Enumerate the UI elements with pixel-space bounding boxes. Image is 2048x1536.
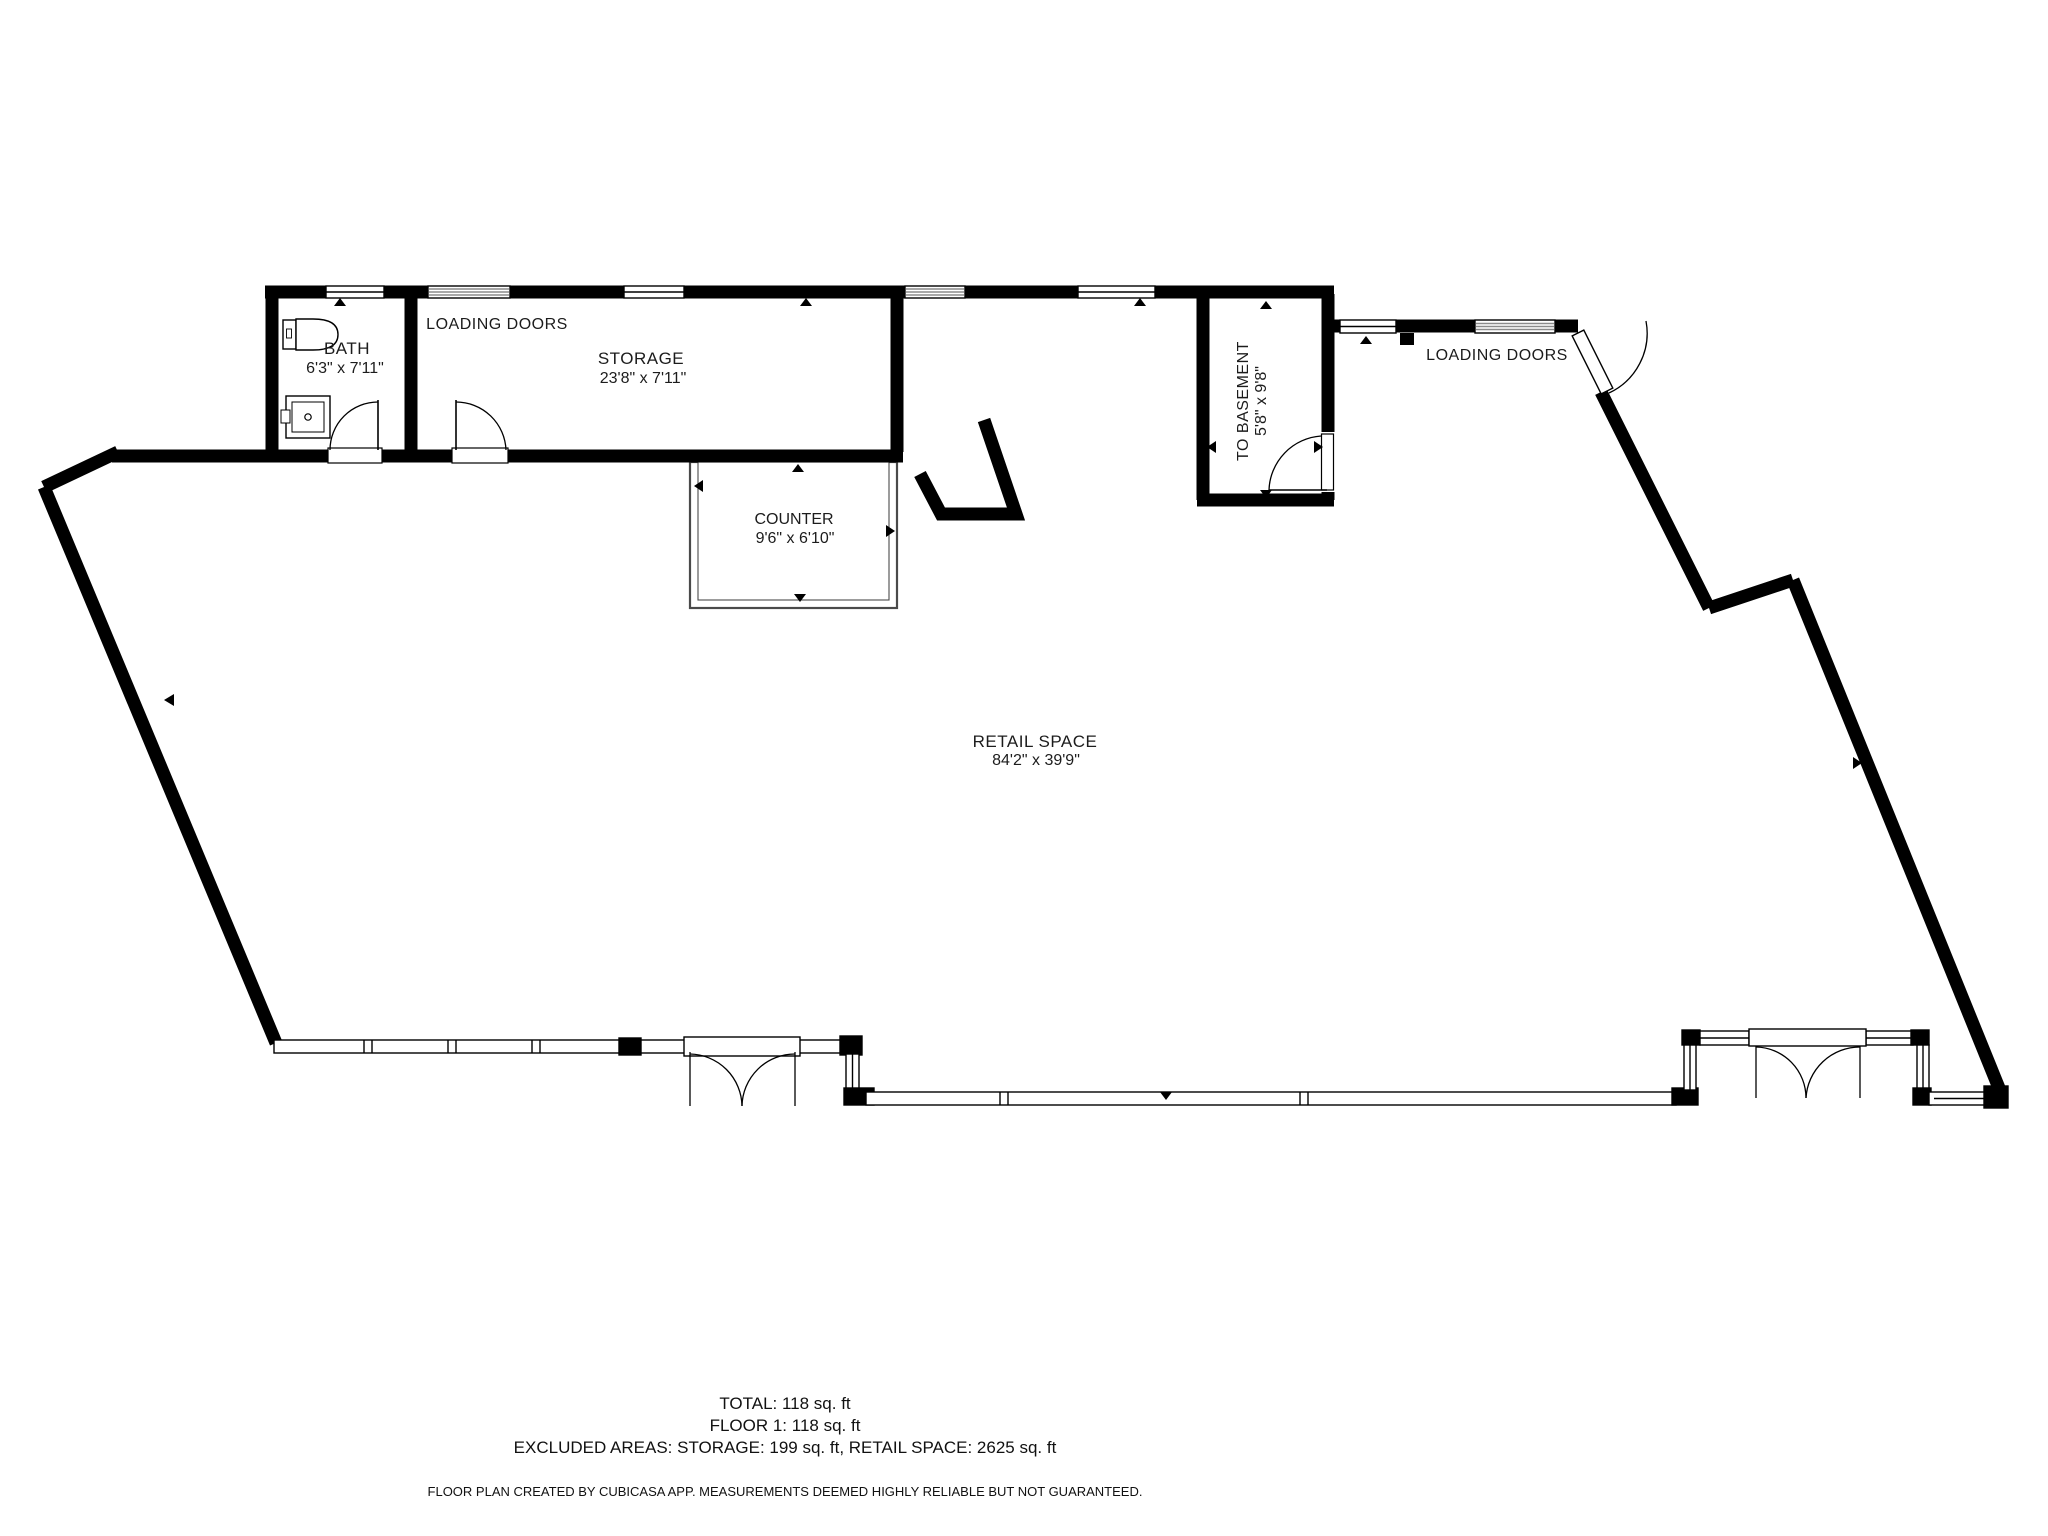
area-summary: TOTAL: 118 sq. ft FLOOR 1: 118 sq. ft EX… xyxy=(514,1393,1057,1459)
storage-door xyxy=(452,400,508,463)
loading-doors-label-left: LOADING DOORS xyxy=(426,316,568,333)
room-label-storage: STORAGE 23'8" x 7'11" xyxy=(598,349,686,387)
exterior-double-door-right xyxy=(1749,1029,1866,1098)
disclaimer-text: FLOOR PLAN CREATED BY CUBICASA APP. MEAS… xyxy=(428,1484,1143,1499)
svg-text:5'8" x 9'8": 5'8" x 9'8" xyxy=(1253,366,1270,436)
loading-door-right-swing xyxy=(1572,321,1647,394)
window-storage-top xyxy=(624,286,684,298)
svg-text:9'6" x 6'10": 9'6" x 6'10" xyxy=(756,530,835,547)
floor-plan-canvas: BATH 6'3" x 7'11" LOADING DOORS STORAGE … xyxy=(0,0,2048,1536)
window-bath-top xyxy=(326,286,384,298)
svg-text:RETAIL SPACE: RETAIL SPACE xyxy=(973,732,1098,751)
bottom-facade xyxy=(274,1029,2008,1108)
floor-plan-page: BATH 6'3" x 7'11" LOADING DOORS STORAGE … xyxy=(0,0,2048,1536)
partition-wall xyxy=(920,420,1016,514)
window-retail-top xyxy=(1078,286,1155,298)
summary-floor1: FLOOR 1: 118 sq. ft xyxy=(514,1415,1057,1437)
svg-text:COUNTER: COUNTER xyxy=(754,511,833,528)
room-label-retail: RETAIL SPACE 84'2" x 39'9" xyxy=(973,732,1098,769)
svg-text:STORAGE: STORAGE xyxy=(598,349,684,368)
svg-text:6'3" x 7'11": 6'3" x 7'11" xyxy=(306,360,384,377)
svg-text:BATH: BATH xyxy=(324,339,370,358)
sink-fixture xyxy=(281,396,330,438)
svg-text:84'2" x 39'9": 84'2" x 39'9" xyxy=(992,752,1080,769)
bath-fixtures xyxy=(281,319,338,438)
room-label-to-basement: TO BASEMENT 5'8" x 9'8" xyxy=(1235,341,1270,461)
summary-total: TOTAL: 118 sq. ft xyxy=(514,1393,1057,1415)
wall-nub xyxy=(1400,333,1414,345)
loading-door-window-middle xyxy=(905,286,965,298)
loading-door-window-storage xyxy=(428,286,510,298)
loading-doors-label-right: LOADING DOORS xyxy=(1426,347,1568,364)
svg-text:23'8" x 7'11": 23'8" x 7'11" xyxy=(600,370,687,387)
walls xyxy=(44,286,2001,1093)
bath-door xyxy=(328,400,382,463)
window-right-wall xyxy=(1340,320,1396,333)
exterior-double-door-left xyxy=(684,1037,800,1106)
basement-door xyxy=(1269,432,1335,492)
bottom-long-band xyxy=(866,1088,1698,1105)
summary-excluded-areas: EXCLUDED AREAS: STORAGE: 199 sq. ft, RET… xyxy=(514,1437,1057,1459)
loading-door-window-right xyxy=(1475,320,1555,333)
svg-text:TO BASEMENT: TO BASEMENT xyxy=(1235,341,1252,461)
